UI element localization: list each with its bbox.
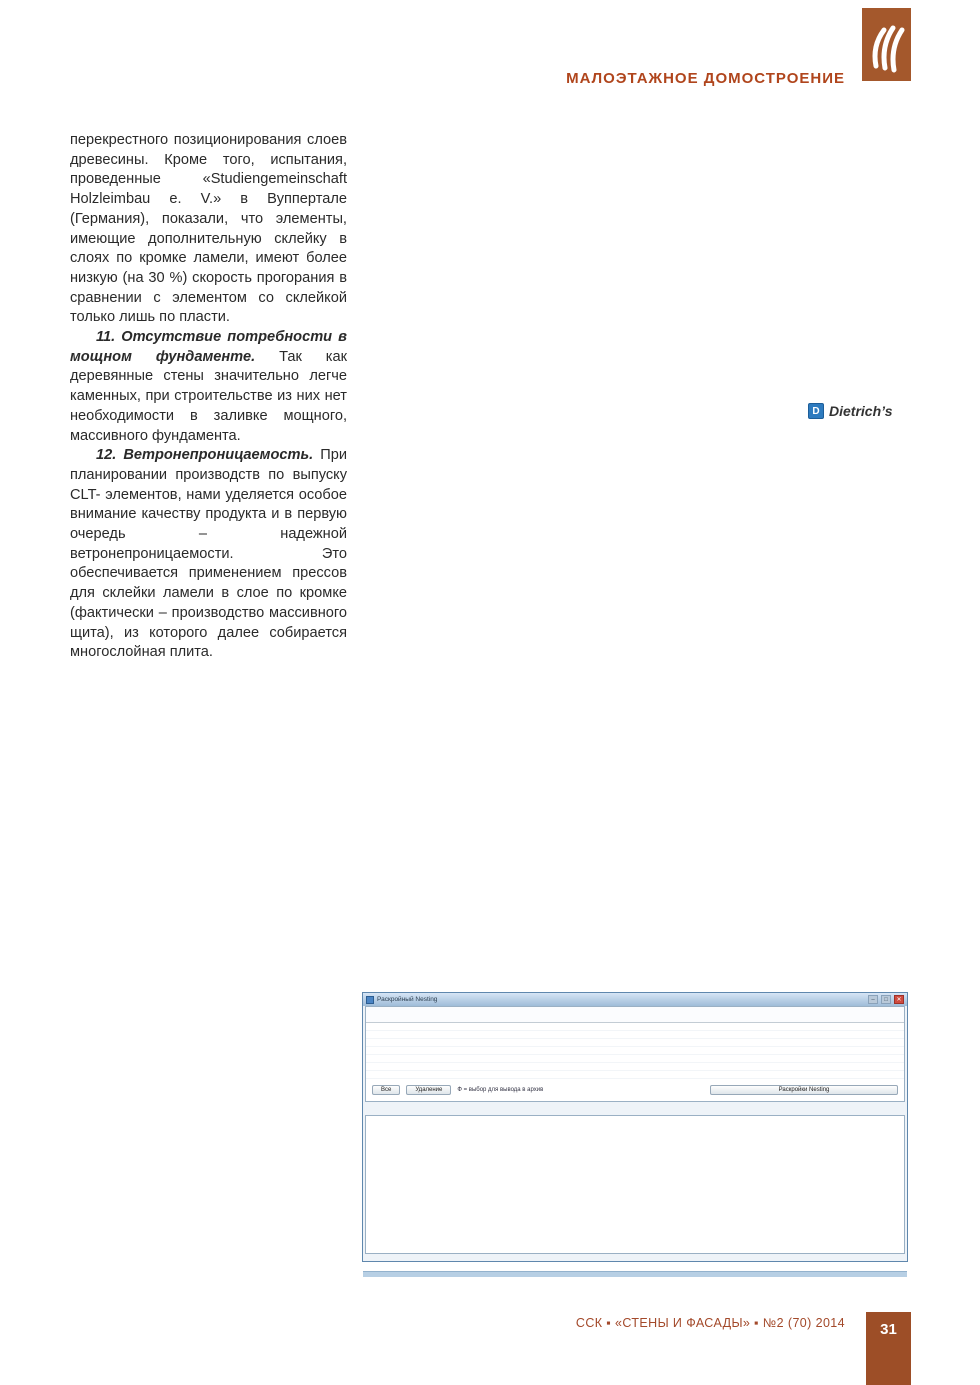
close-icon: ✕ (894, 995, 904, 1004)
dietrichs-logo-text: Dietrich’s (829, 403, 893, 419)
column-left: перекрестного позиционирования слоев дре… (70, 131, 347, 1266)
table-controls: Все Удаление Ф = выбор для вывода в архи… (366, 1079, 904, 1101)
paragraph: 11. Отсутствие потребности в мощном фунд… (70, 328, 347, 446)
publisher-logo (862, 8, 911, 81)
software-window-title: Раскройный Nesting (377, 996, 865, 1003)
leaf-logo-icon (862, 8, 911, 81)
delete-button: Удаление (406, 1085, 451, 1095)
journal-footer-line: ССК ▪ «СТЕНЫ И ФАСАДЫ» ▪ №2 (70) 2014 (576, 1316, 845, 1330)
nesting-button: Раскройки Nesting (710, 1085, 898, 1095)
selection-hint-label: Ф = выбор для вывода в архив (457, 1087, 704, 1093)
figure-clt-panel (70, 677, 347, 811)
nesting-layout-drawing (366, 1116, 904, 1253)
paragraph-lead: 11. Отсутствие потребности в мощном фунд… (70, 329, 347, 365)
dietrichs-d-icon: D (808, 403, 824, 419)
table-empty-rows (366, 1023, 904, 1079)
dietrichs-logo: D Dietrich’s (808, 403, 893, 419)
software-parts-table: Все Удаление Ф = выбор для вывода в архи… (365, 1006, 905, 1102)
section-title: МАЛОЭТАЖНОЕ ДОМОСТРОЕНИЕ (566, 70, 845, 87)
page-number-tab: 31 (866, 1312, 911, 1385)
software-titlebar: Раскройный Nesting – □ ✕ (363, 993, 907, 1006)
minimize-icon: – (868, 995, 878, 1004)
software-bottom-buttons (363, 1254, 907, 1271)
table-header-row (366, 1007, 904, 1023)
software-toolbar (363, 1102, 907, 1115)
paragraph-lead: 12. Ветронепроницаемость. (96, 447, 313, 463)
house-3d-cad-illustration (358, 95, 936, 447)
clt-panel-photo (70, 677, 340, 809)
all-button: Все (372, 1085, 400, 1095)
paragraph: 12. Ветронепроницаемость. При планирован… (70, 446, 347, 663)
software-app-icon (366, 996, 374, 1004)
maximize-icon: □ (881, 995, 891, 1004)
software-statusbar (363, 1271, 907, 1277)
paragraph: перекрестного позиционирования слоев дре… (70, 131, 347, 328)
nesting-canvas (365, 1115, 905, 1254)
figure-software-screenshot: Раскройный Nesting – □ ✕ Все Удаление Ф … (362, 992, 908, 1262)
magazine-page: МАЛОЭТАЖНОЕ ДОМОСТРОЕНИЕ D Dietrich’s пе… (0, 0, 980, 1385)
column-middle (357, 450, 634, 990)
figure-house-3d: D Dietrich’s (358, 95, 936, 447)
